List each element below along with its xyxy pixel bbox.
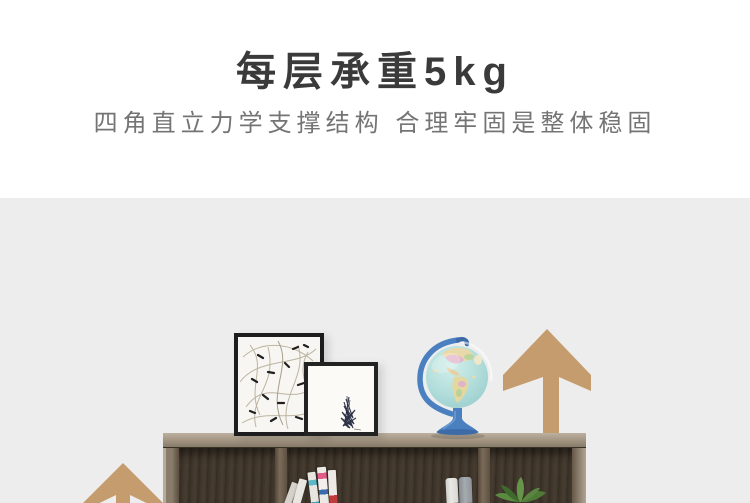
binder [459,477,473,503]
globe-sphere [426,342,491,408]
plant-leaves [495,477,546,502]
bookshelf-right-wall [572,446,586,503]
binder [445,478,458,503]
page-title: 每层承重5kg [0,0,750,95]
globe [412,337,504,441]
picture-frame-small [304,362,378,436]
bookshelf-divider [478,446,490,503]
page-subtitle: 四角直立力学支撑结构 合理牢固是整体稳固 [0,109,750,139]
bookshelf-left-wall [163,446,179,503]
ink-sketch-art [308,366,374,432]
up-arrow-icon [78,463,168,503]
header-section: 每层承重5kg 四角直立力学支撑结构 合理牢固是整体稳固 [0,0,750,198]
product-illustration [0,198,750,503]
plant [493,475,548,503]
bookshelf-divider [275,446,287,503]
bookshelf [163,433,586,503]
up-arrow-icon [503,329,591,433]
